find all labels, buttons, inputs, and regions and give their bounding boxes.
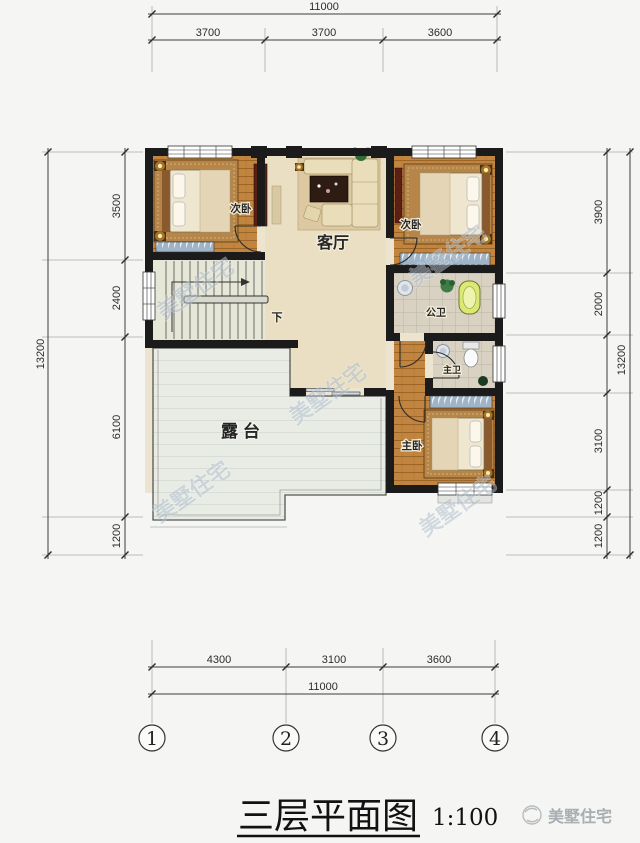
blanket [200, 170, 230, 232]
plant [478, 376, 488, 386]
dim-right-seg4: 1200 [593, 491, 605, 515]
floor-plan-page: 11000 3700 3700 3600 13200 3500 2400 610… [0, 0, 640, 843]
bed-headboard [162, 170, 170, 232]
grid-bubble-1: 1 [146, 728, 158, 750]
bath-public-label: 公卫 [426, 307, 446, 319]
dim-left-seg1: 3500 [111, 194, 123, 218]
bedroom-right-label: 次卧 [401, 218, 422, 231]
wardrobe [156, 242, 214, 252]
grid-bubble-2: 2 [280, 728, 292, 750]
pillow [173, 202, 185, 226]
terrace-label: 露台 [221, 421, 265, 442]
window [493, 284, 505, 318]
blanket [432, 418, 458, 470]
pillow [173, 174, 185, 198]
toilet [464, 349, 478, 367]
chaise [322, 204, 352, 226]
dim-bottom-seg2: 3100 [322, 654, 346, 666]
dim-bottom-overall: 11000 [308, 681, 338, 693]
dim-right-seg5: 1200 [593, 524, 605, 548]
brand-name: 美墅住宅 [548, 807, 612, 826]
floor-plan-drawing: 11000 3700 3700 3600 13200 3500 2400 610… [0, 0, 640, 843]
sofa-top [304, 159, 356, 174]
bed-headboard [484, 418, 492, 470]
window [412, 146, 476, 158]
drawing-title: 三层平面图 [238, 796, 418, 837]
dim-top-seg3: 3600 [428, 27, 452, 39]
dim-bottom-seg1: 4300 [207, 654, 231, 666]
window [168, 146, 232, 158]
living-room-furniture [295, 148, 380, 231]
corridor-floor [394, 341, 425, 396]
living-room-label: 客厅 [317, 233, 349, 252]
pillow [470, 421, 481, 442]
wardrobe [430, 396, 492, 408]
dim-top-overall: 11000 [309, 1, 339, 13]
window [143, 272, 155, 320]
dim-right-seg3: 3100 [593, 429, 605, 453]
console-table [272, 186, 281, 224]
dim-left-seg3: 6100 [111, 415, 123, 439]
dim-top-seg1: 3700 [196, 27, 220, 39]
tv-cabinet [395, 168, 402, 223]
dim-left-seg4: 1200 [111, 524, 123, 548]
window [493, 346, 505, 382]
dim-right-seg1: 3900 [593, 200, 605, 224]
dim-left-overall: 13200 [35, 339, 47, 370]
bath-master-label: 主卫 [443, 364, 461, 376]
grid-bubble-3: 3 [377, 728, 389, 750]
toilet-tank [463, 342, 479, 349]
dim-right-overall: 13200 [616, 345, 628, 376]
bedroom-master-label: 主卧 [402, 439, 423, 452]
blanket [420, 173, 450, 235]
dim-left-seg2: 2400 [111, 286, 123, 310]
dim-right-seg2: 2000 [593, 292, 605, 316]
bedroom-master-furniture [424, 410, 494, 478]
stairs-down-label: 下 [272, 311, 283, 324]
bed-headboard [482, 173, 490, 235]
pillow [470, 446, 481, 467]
dim-bottom-seg3: 3600 [427, 654, 451, 666]
grid-bubble-4: 4 [489, 728, 501, 750]
dim-top-seg2: 3700 [312, 27, 336, 39]
bedroom-left-furniture [154, 160, 238, 242]
drawing-scale: 1:100 [432, 805, 498, 831]
sofa-right [352, 159, 378, 227]
bedroom-left-label: 次卧 [231, 202, 252, 215]
coffee-table [310, 176, 348, 202]
pillow [467, 177, 479, 201]
